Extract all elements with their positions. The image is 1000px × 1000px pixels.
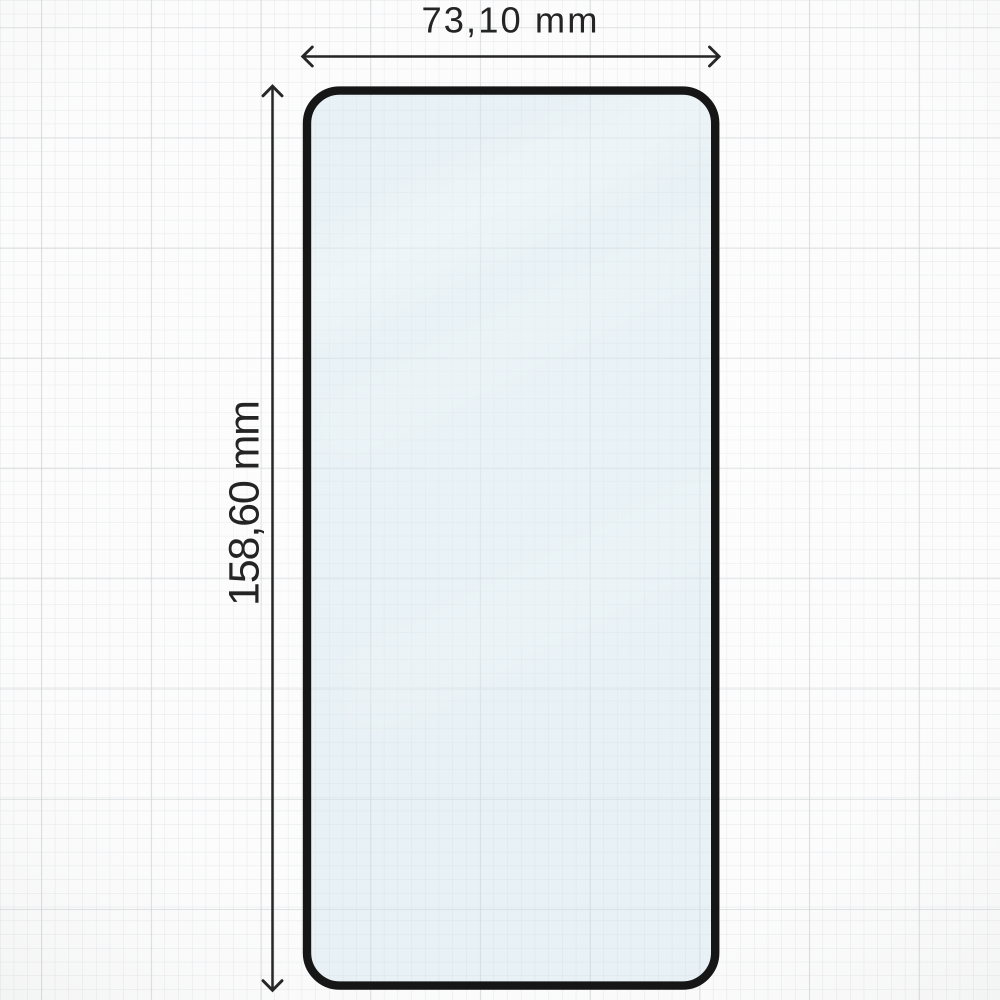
svg-text:73,10 mm: 73,10 mm: [422, 0, 598, 41]
svg-text:158,60 mm: 158,60 mm: [221, 400, 269, 606]
